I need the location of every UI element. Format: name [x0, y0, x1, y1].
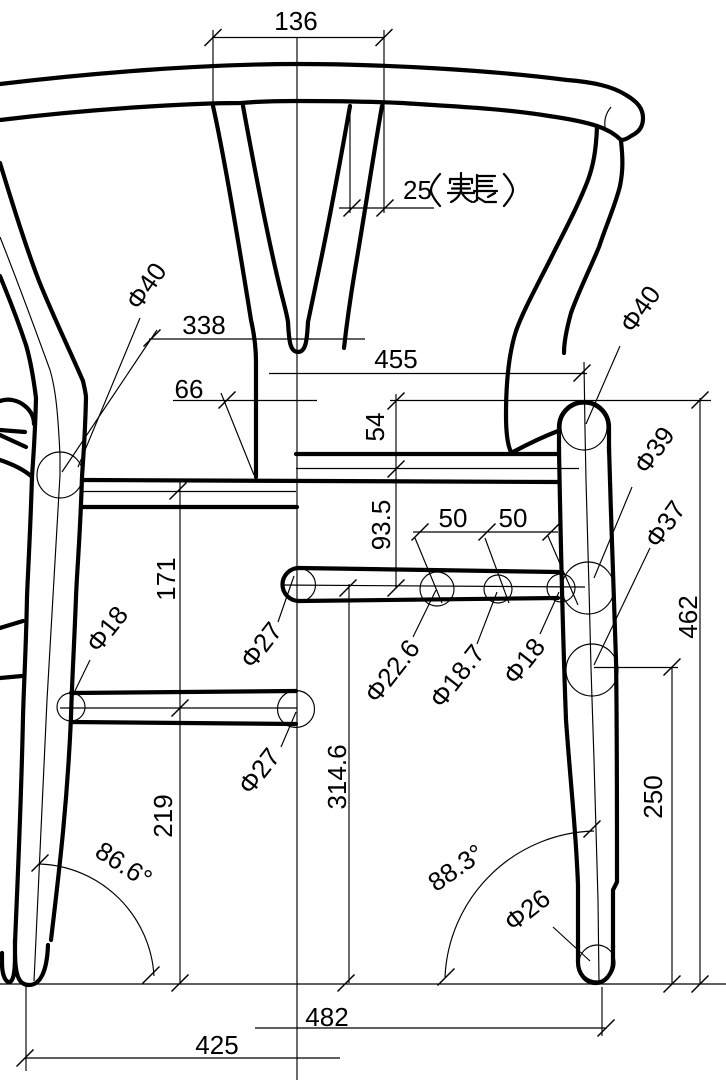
svg-text:455: 455: [374, 344, 417, 374]
svg-text:66: 66: [175, 374, 204, 404]
svg-text:171: 171: [151, 557, 181, 600]
svg-text:50: 50: [499, 503, 528, 533]
svg-text:25: 25: [403, 175, 432, 205]
svg-text:314.6: 314.6: [322, 744, 352, 809]
svg-text:425: 425: [195, 1030, 238, 1060]
svg-text:250: 250: [638, 775, 668, 818]
svg-text:136: 136: [274, 6, 317, 36]
svg-text:219: 219: [148, 794, 178, 837]
svg-text:93.5: 93.5: [366, 500, 396, 551]
svg-text:338: 338: [182, 310, 225, 340]
svg-text:482: 482: [305, 1002, 348, 1032]
svg-text:54: 54: [360, 413, 390, 442]
svg-text:462: 462: [673, 595, 703, 638]
svg-text:50: 50: [439, 503, 468, 533]
